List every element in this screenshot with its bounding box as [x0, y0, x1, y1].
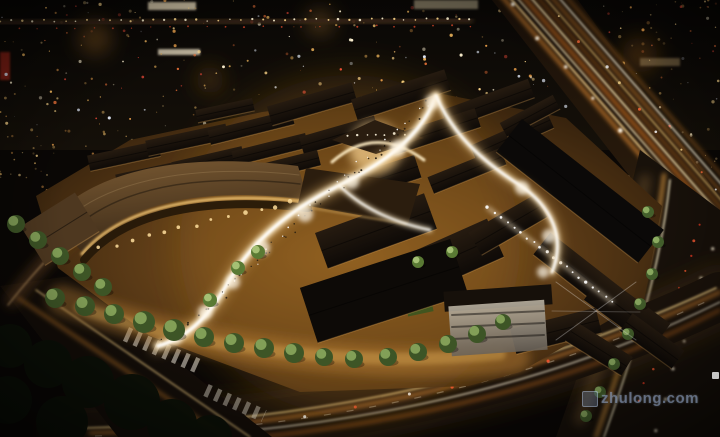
corner-badge — [712, 372, 719, 379]
vignette — [0, 0, 720, 437]
night-aerial-cityscape: zhulong.com — [0, 0, 720, 437]
scene-canvas — [0, 0, 720, 437]
